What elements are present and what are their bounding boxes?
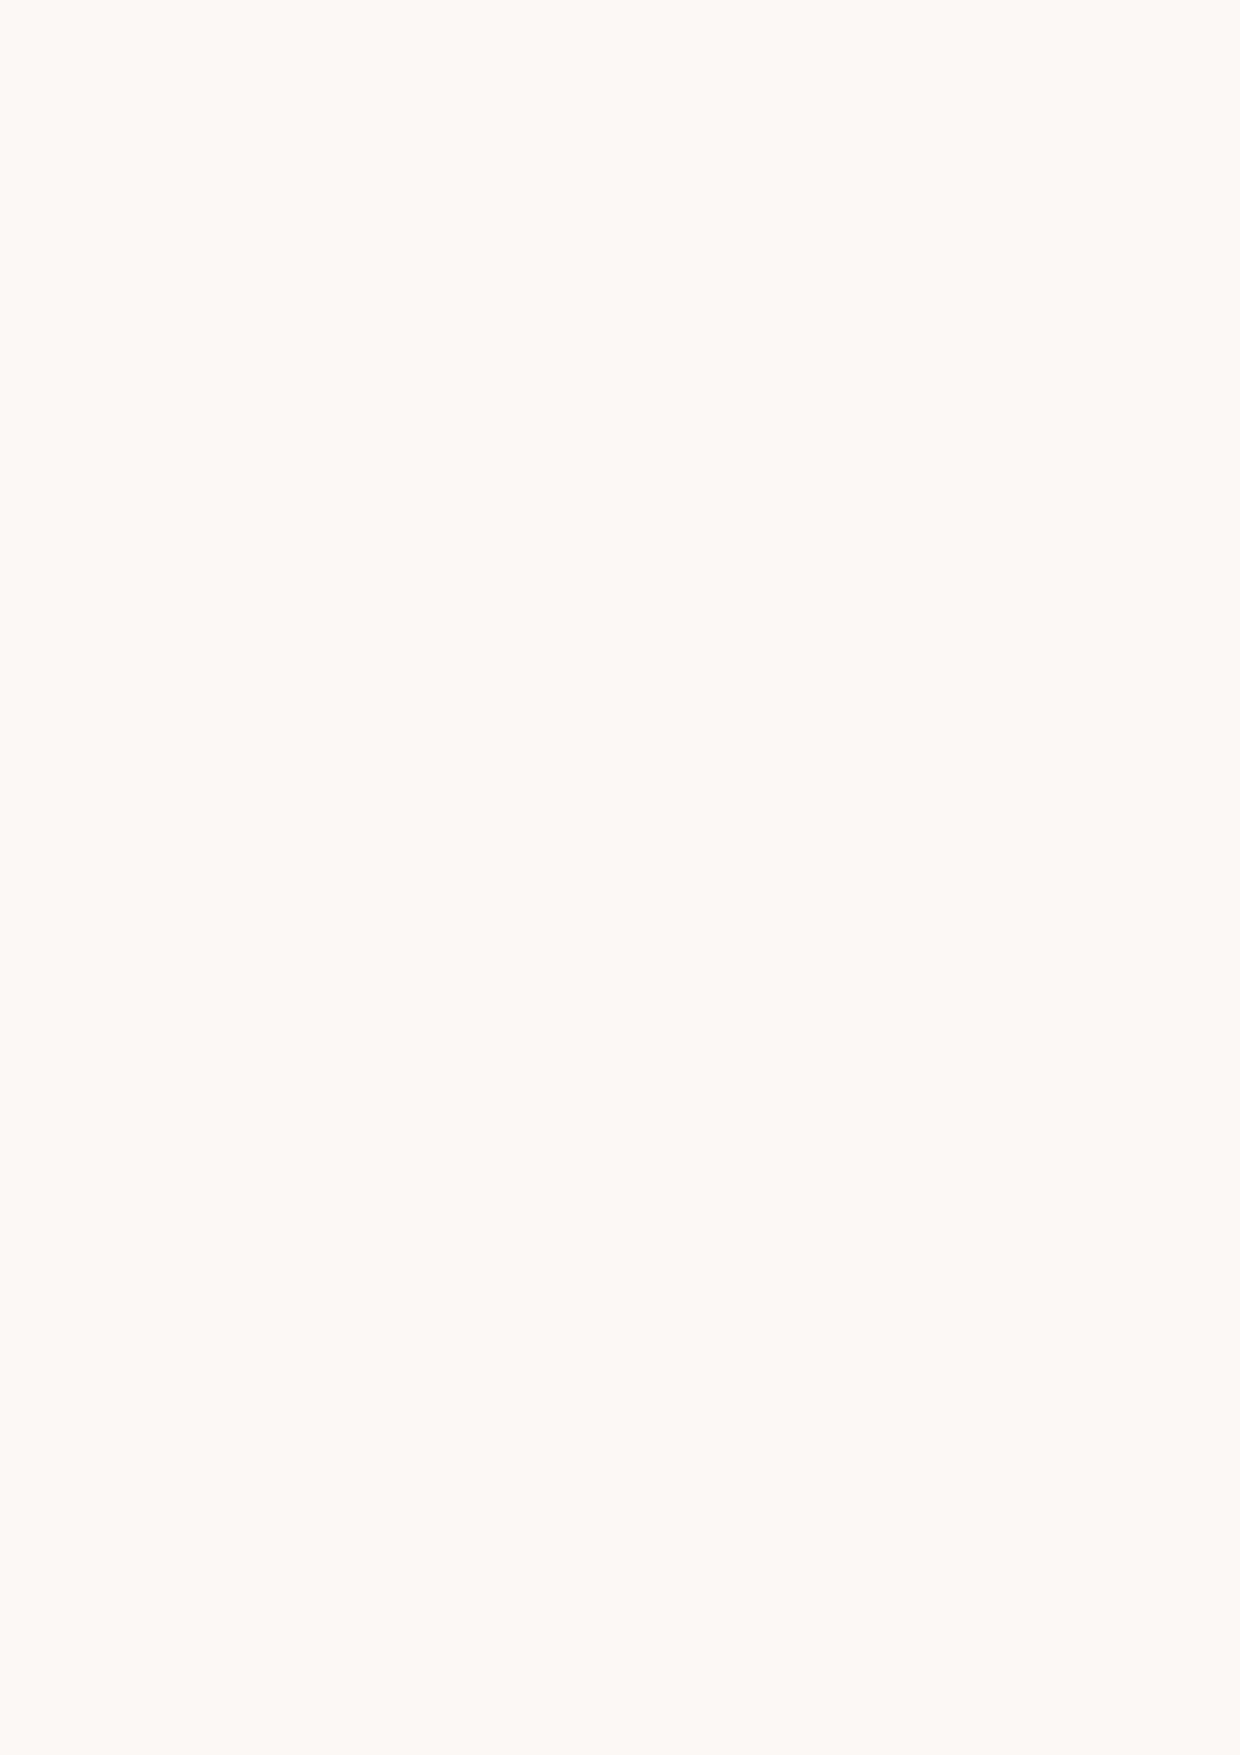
scanned-layout-page	[0, 0, 1240, 1755]
layout-plan-drawing	[0, 0, 1240, 1755]
